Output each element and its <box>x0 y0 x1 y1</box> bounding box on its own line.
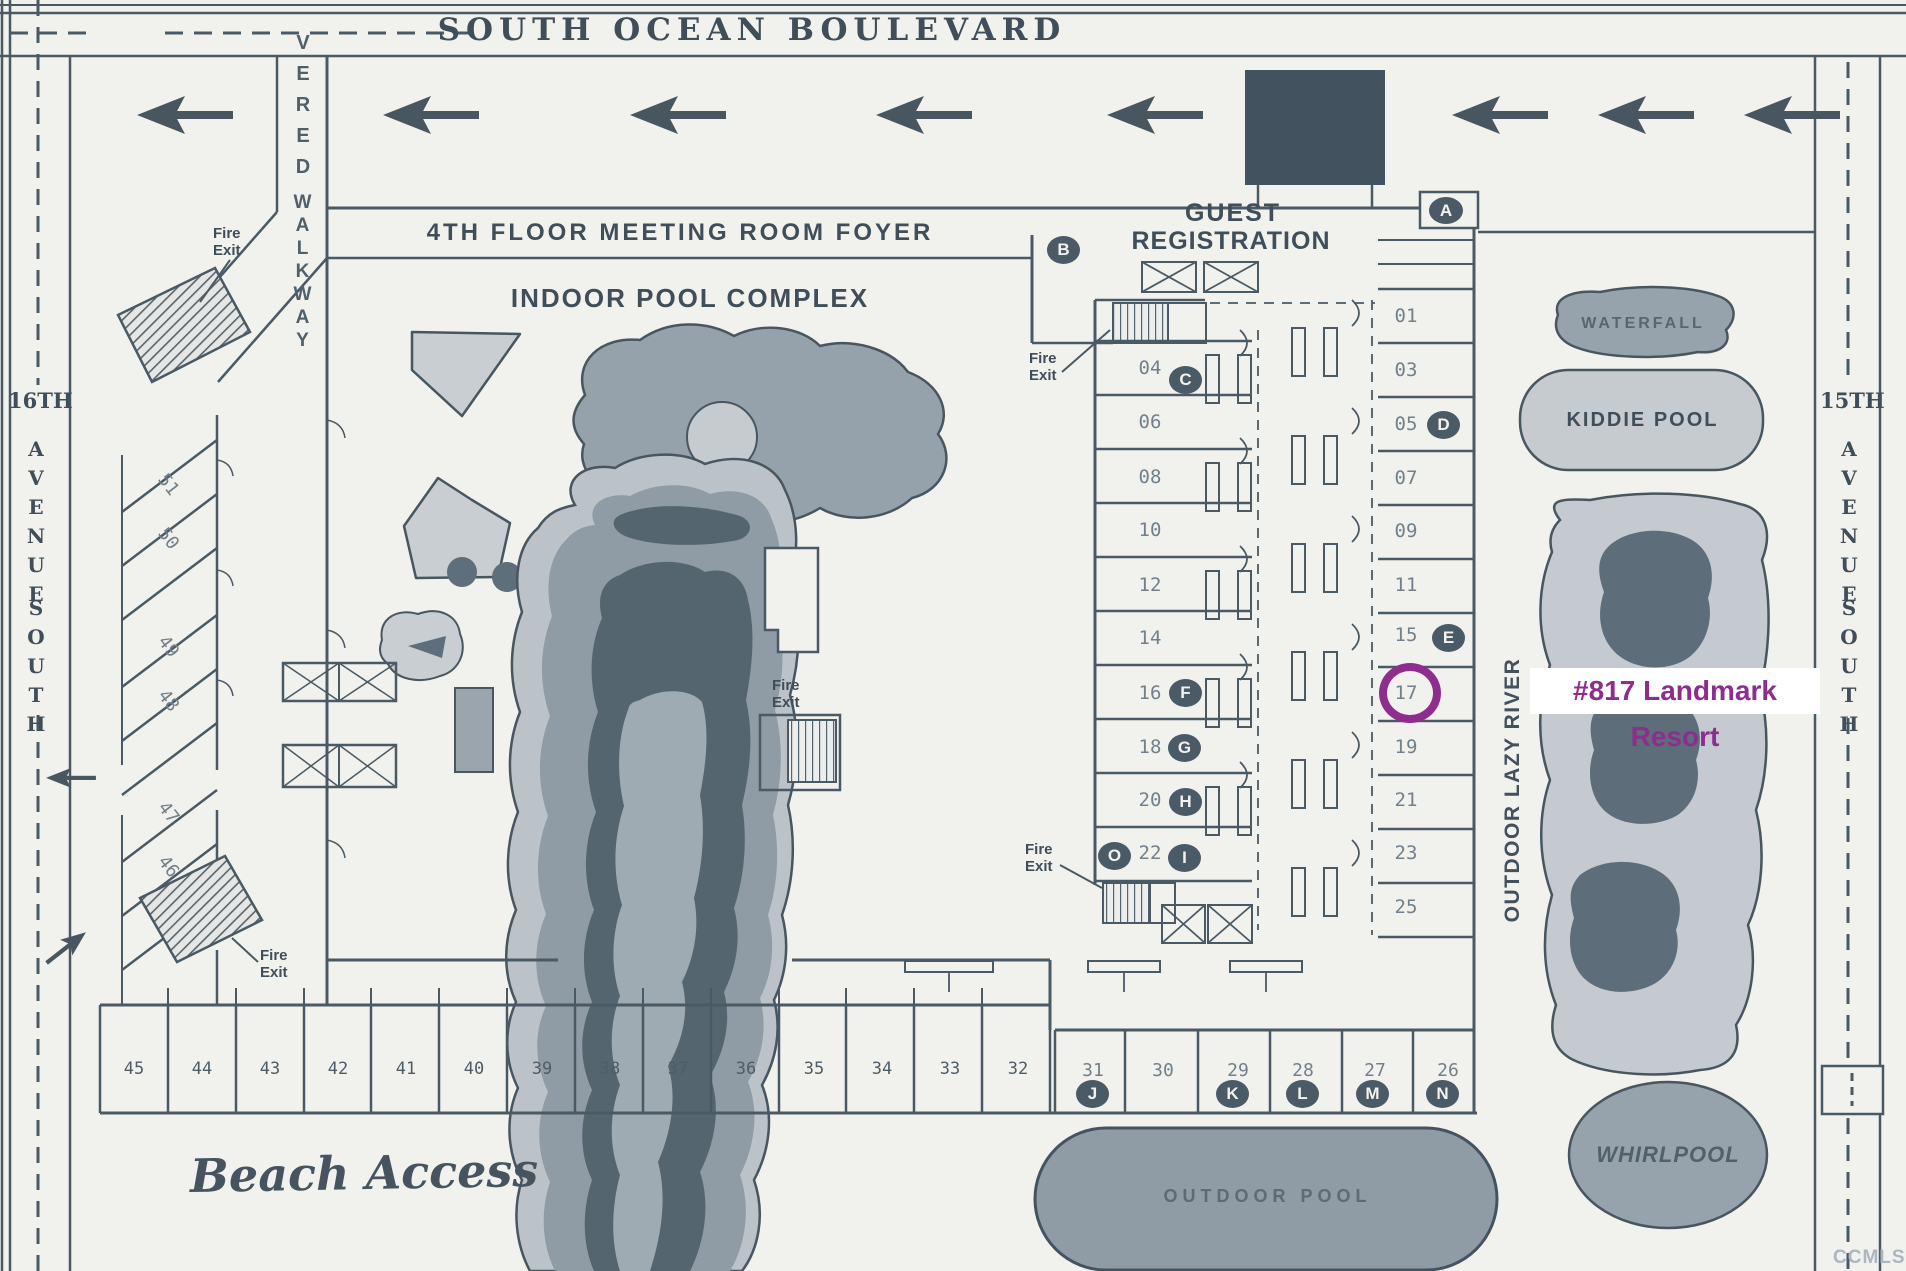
fire-exit-label-top-left: FireExit <box>213 226 241 259</box>
room-number: 30 <box>1138 1059 1188 1083</box>
fire-exit-ramps <box>118 260 262 962</box>
street-name-south-right: SOUTH <box>1837 596 1861 741</box>
fire-exit-label-bottom-left: FireExit <box>260 948 288 981</box>
entrance-canopy <box>1245 70 1385 185</box>
parking-spot-number: 45 <box>114 1058 154 1080</box>
parking-spot-number: 41 <box>386 1058 426 1080</box>
room-17-highlight-circle <box>1379 663 1441 723</box>
room-number: 15 <box>1381 623 1431 647</box>
parking-spot-number: 43 <box>250 1058 290 1080</box>
room-number: 01 <box>1381 304 1431 328</box>
room-number: 19 <box>1381 735 1431 759</box>
indoor-pool-label: INDOOR POOL COMPLEX <box>400 283 980 314</box>
room-number: 07 <box>1381 466 1431 490</box>
kiddie-pool-label: KIDDIE POOL <box>1545 409 1740 432</box>
badge-k: K <box>1216 1080 1249 1108</box>
badge-d: D <box>1427 411 1460 439</box>
waterfall-label: WATERFALL <box>1568 315 1718 333</box>
street-prefix-16th: 16TH <box>8 388 70 413</box>
room-number: 03 <box>1381 358 1431 382</box>
room-number: 14 <box>1125 626 1175 650</box>
parking-spot-number: 40 <box>454 1058 494 1080</box>
beach-stall-row <box>100 988 1477 1113</box>
street-name-south-left: SOUTH <box>24 596 48 741</box>
badge-g: G <box>1168 734 1201 762</box>
foyer-label: 4TH FLOOR MEETING ROOM FOYER <box>360 219 1000 247</box>
badge-registration-b: B <box>1047 236 1080 264</box>
fire-exit-label-center: FireExit <box>772 678 800 711</box>
watermark: CCMLS <box>1833 1247 1906 1269</box>
room-number: 16 <box>1125 681 1175 705</box>
fire-exit-label-registration: FireExit <box>1029 351 1057 384</box>
room-number: 11 <box>1381 573 1431 597</box>
whirlpool-label: WHIRLPOOL <box>1578 1142 1758 1168</box>
covered-walkway-label-top: VERED <box>291 32 314 187</box>
parking-spot-number: 32 <box>998 1058 1038 1080</box>
hot-tub-1 <box>447 557 477 587</box>
main-pool-river <box>506 455 798 1271</box>
street-name-boulevard: SOUTH OCEAN BOULEVARD <box>420 12 1084 48</box>
badge-n: N <box>1426 1080 1459 1108</box>
room-number: 06 <box>1125 410 1175 434</box>
room-number: 09 <box>1381 519 1431 543</box>
badge-e: E <box>1432 624 1465 652</box>
fire-exit-label-bottom-center: FireExit <box>1025 842 1053 875</box>
room-number: 29 <box>1213 1059 1263 1083</box>
room-number: 08 <box>1125 465 1175 489</box>
guest-registration-label-line1: GUEST <box>1158 199 1308 228</box>
parking-spot-number: 33 <box>930 1058 970 1080</box>
pool-equipment-rect <box>455 688 493 772</box>
street-prefix-15th: 15TH <box>1820 388 1880 413</box>
covered-walkway-label-bottom: WALKWAY <box>291 192 313 353</box>
badge-h: H <box>1169 788 1202 816</box>
street-name-avenue-left: AVENUE <box>24 437 48 611</box>
badge-entrance-a: A <box>1429 197 1463 224</box>
street-name-avenue-right: AVENUE <box>1837 437 1861 611</box>
walkway-bridges <box>283 663 396 787</box>
resort-site-map: SOUTH OCEAN BOULEVARD 4TH FLOOR MEETING … <box>0 0 1906 1271</box>
room-number: 21 <box>1381 788 1431 812</box>
badge-f: F <box>1169 679 1202 707</box>
badge-c: C <box>1169 366 1202 394</box>
parking-spot-number: 37 <box>658 1058 698 1080</box>
badge-l: L <box>1286 1080 1319 1108</box>
badge-m: M <box>1356 1080 1389 1108</box>
room-number: 20 <box>1125 788 1175 812</box>
map-linework <box>0 0 1906 1271</box>
badge-o: O <box>1098 842 1131 870</box>
room-number: 25 <box>1381 895 1431 919</box>
badge-j: J <box>1076 1080 1109 1108</box>
badge-i: I <box>1168 844 1201 872</box>
annotation-817-landmark-resort: #817 Landmark Resort <box>1530 668 1820 714</box>
room-number: 12 <box>1125 573 1175 597</box>
parking-spot-number: 35 <box>794 1058 834 1080</box>
room-number: 26 <box>1423 1059 1473 1083</box>
room-number: 04 <box>1125 356 1175 380</box>
parking-spot-number: 39 <box>522 1058 562 1080</box>
parking-spot-number: 44 <box>182 1058 222 1080</box>
parking-spot-number: 36 <box>726 1058 766 1080</box>
parking-spot-number: 38 <box>590 1058 630 1080</box>
parking-spot-number: 34 <box>862 1058 902 1080</box>
bottom-core <box>905 330 1302 992</box>
room-number: 10 <box>1125 518 1175 542</box>
room-number: 23 <box>1381 841 1431 865</box>
parking-spot-number: 42 <box>318 1058 358 1080</box>
room-number: 05 <box>1381 412 1431 436</box>
outdoor-pool-label: OUTDOOR POOL <box>1140 1186 1395 1207</box>
pool-deck-triangle <box>412 332 520 416</box>
guest-registration-label-line2: REGISTRATION <box>1098 227 1364 256</box>
lazy-river-label: OUTDOOR LAZY RIVER <box>1501 640 1525 940</box>
beach-access-label: Beach Access <box>190 1143 539 1203</box>
